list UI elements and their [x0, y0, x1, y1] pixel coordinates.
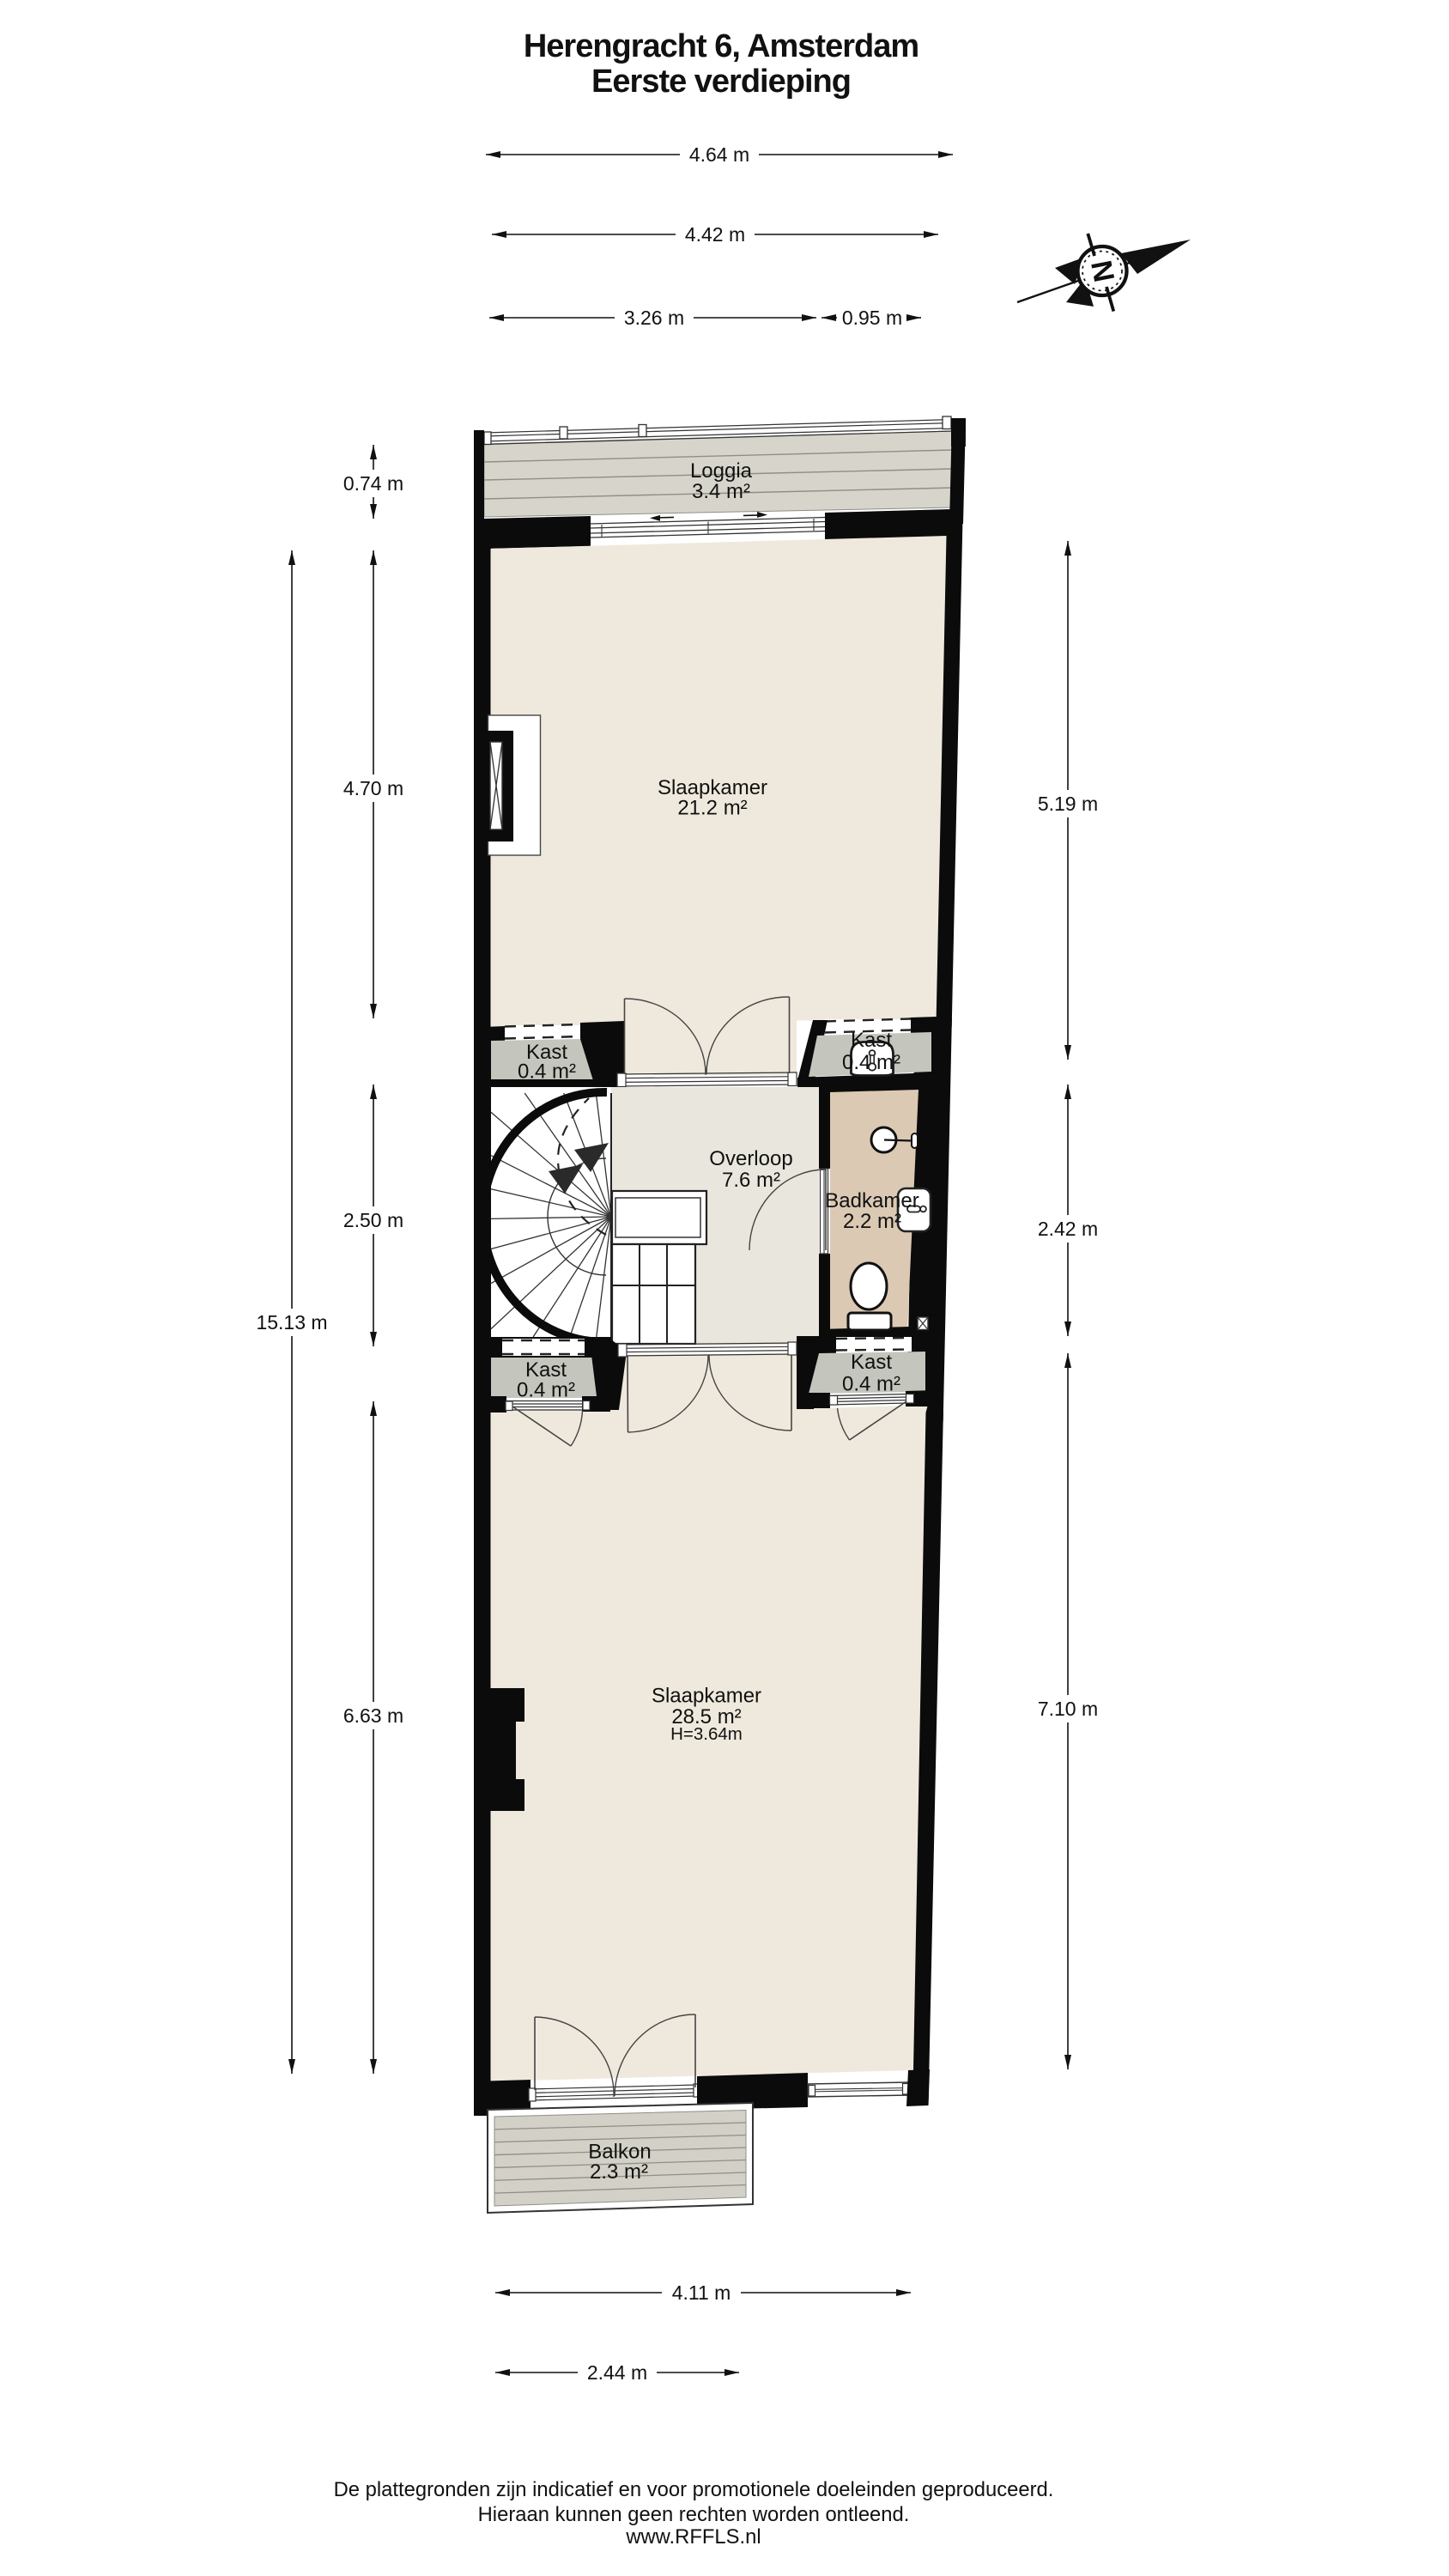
svg-text:2.50 m: 2.50 m	[343, 1209, 403, 1231]
svg-text:4.11 m: 4.11 m	[672, 2281, 731, 2304]
svg-text:0.4 m²: 0.4 m²	[842, 1051, 900, 1074]
svg-text:0.74 m: 0.74 m	[343, 472, 403, 495]
svg-text:2.42 m: 2.42 m	[1038, 1218, 1098, 1240]
svg-text:4.42 m: 4.42 m	[685, 223, 745, 246]
svg-text:2.2 m²: 2.2 m²	[843, 1210, 901, 1233]
svg-text:3.26 m: 3.26 m	[624, 307, 684, 329]
svg-text:4.64 m: 4.64 m	[689, 143, 749, 166]
svg-text:2.44 m: 2.44 m	[587, 2361, 647, 2384]
svg-text:Slaapkamer: Slaapkamer	[652, 1685, 761, 1708]
svg-text:0.95 m: 0.95 m	[842, 307, 902, 329]
svg-text:7.6 m²: 7.6 m²	[722, 1169, 780, 1192]
svg-text:7.10 m: 7.10 m	[1038, 1698, 1098, 1720]
svg-text:5.19 m: 5.19 m	[1038, 793, 1098, 815]
svg-text:0.4 m²: 0.4 m²	[517, 1379, 575, 1402]
svg-text:0.4 m²: 0.4 m²	[518, 1060, 576, 1084]
svg-text:Eerste verdieping: Eerste verdieping	[591, 64, 851, 100]
svg-text:Kast: Kast	[851, 1029, 892, 1052]
svg-text:Overloop: Overloop	[709, 1147, 792, 1170]
svg-text:H=3.64m: H=3.64m	[670, 1724, 743, 1744]
svg-text:21.2 m²: 21.2 m²	[677, 797, 747, 820]
svg-text:3.4 m²: 3.4 m²	[692, 480, 750, 503]
svg-text:Kast: Kast	[851, 1351, 892, 1374]
svg-text:Hieraan kunnen geen rechten wo: Hieraan kunnen geen rechten worden ontle…	[478, 2503, 910, 2526]
svg-text:www.RFFLS.nl: www.RFFLS.nl	[625, 2525, 761, 2549]
svg-text:4.70 m: 4.70 m	[343, 777, 403, 799]
svg-text:Herengracht 6, Amsterdam: Herengracht 6, Amsterdam	[524, 28, 919, 64]
svg-text:Loggia: Loggia	[690, 459, 753, 483]
svg-text:0.4 m²: 0.4 m²	[842, 1373, 900, 1396]
svg-text:15.13 m: 15.13 m	[256, 1311, 327, 1334]
svg-text:2.3 m²: 2.3 m²	[590, 2160, 648, 2184]
svg-text:6.63 m: 6.63 m	[343, 1704, 403, 1727]
svg-text:Badkamer: Badkamer	[825, 1189, 919, 1212]
svg-text:De plattegronden zijn indicati: De plattegronden zijn indicatief en voor…	[334, 2478, 1054, 2501]
